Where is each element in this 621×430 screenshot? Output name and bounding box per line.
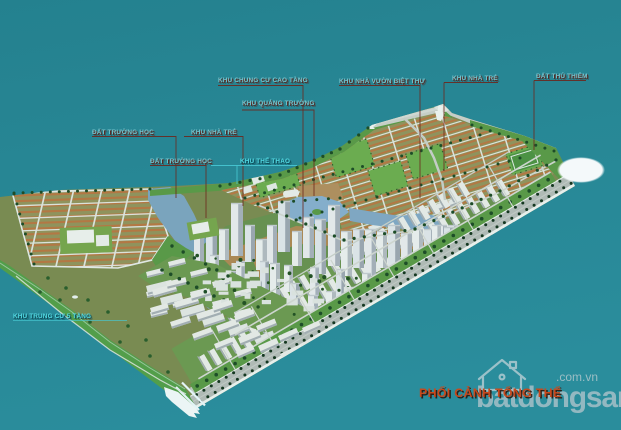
svg-text:PHỐI CẢNH TỔNG THỂ: PHỐI CẢNH TỔNG THỂ	[419, 385, 561, 400]
